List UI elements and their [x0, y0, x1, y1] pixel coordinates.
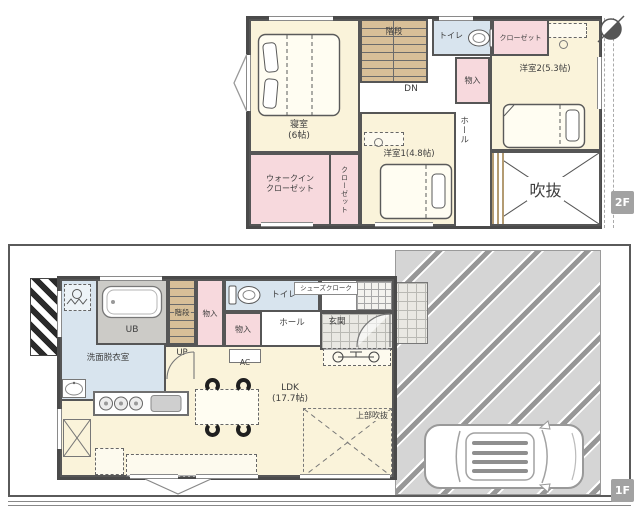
ldk-name: LDK — [281, 383, 299, 393]
yoshitsu2-label: 洋室2(5.3帖) — [495, 64, 595, 75]
road-edge-lines — [8, 501, 631, 506]
stool-icon — [559, 40, 568, 49]
window — [269, 16, 333, 21]
bay-window-triangle — [145, 478, 211, 496]
dn-label: DN — [396, 84, 426, 95]
washroom-label: 洗面脱衣室 — [60, 353, 156, 364]
floor1-badge-text: 1F — [615, 484, 630, 497]
kitchen-glyphs — [95, 393, 187, 414]
kitchen-counter — [93, 391, 189, 416]
bedroom-label: 寝室 (6帖) — [263, 120, 335, 143]
closet-top-label: クローゼット — [500, 33, 542, 43]
washing-machine-icon — [64, 284, 91, 311]
shoes-label: シューズクローク — [300, 284, 352, 292]
entrance-door-arc — [356, 313, 392, 349]
double-bed-icon — [257, 33, 341, 117]
wic-line2: クローゼット — [266, 184, 314, 193]
desk-icon — [364, 132, 404, 146]
window — [100, 276, 162, 281]
dining-table — [195, 389, 259, 425]
upper-void-label: 上部吹抜 — [355, 411, 389, 421]
chair-icon — [205, 422, 220, 437]
window — [597, 57, 602, 109]
floor2-badge-text: 2F — [615, 196, 630, 209]
window — [300, 474, 390, 479]
window — [439, 16, 473, 21]
room-storage-a-1f: 物入 — [196, 279, 224, 347]
wic-label: ウォークイン クローゼット — [251, 174, 329, 194]
stairs-1f-label: 階段 — [174, 307, 191, 318]
bay-window-chevron — [233, 54, 247, 112]
window — [375, 222, 433, 227]
pantry-shelf — [63, 419, 91, 457]
toilet-icon — [228, 282, 264, 309]
pantry-diagonal — [64, 420, 90, 456]
floor1-house: LDK (17.7帖) 洗面脱衣室 — [57, 276, 397, 480]
room-closet-top-2f: クローゼット — [492, 19, 549, 56]
floor2-plan: 寝室 (6帖) ウォークイン クローゼット クローゼット 階段 DN 洋室2(5… — [246, 16, 602, 229]
washbasin-icon — [62, 379, 86, 398]
ac-box: AC — [229, 349, 261, 363]
room-closet-side-2f: クローゼット — [329, 153, 360, 226]
room-storage-2f: 物入 — [455, 57, 490, 104]
compass-icon — [596, 14, 626, 44]
chair-icon — [236, 378, 251, 393]
void-edge-stripes — [492, 153, 504, 224]
closet-side-label: クローゼット — [340, 166, 350, 214]
void-2f-label: 吹抜 — [527, 177, 563, 201]
bathtub-icon — [101, 285, 163, 319]
bedroom-size: (6帖) — [288, 131, 310, 141]
floorplan-canvas: 寝室 (6帖) ウォークイン クローゼット クローゼット 階段 DN 洋室2(5… — [0, 0, 640, 514]
upper-void: 上部吹抜 — [303, 408, 392, 477]
hatched-strip — [30, 278, 60, 356]
wic-line1: ウォークイン — [266, 174, 314, 183]
washroom-door-arc — [166, 351, 196, 381]
stool-icon — [374, 138, 383, 147]
window — [261, 222, 313, 227]
stairs-1f: 階段 — [168, 279, 196, 345]
chair-icon — [236, 422, 251, 437]
ldk-size: (17.7帖) — [272, 394, 308, 404]
floor1-lot: LDK (17.7帖) 洗面脱衣室 — [8, 244, 631, 497]
bedroom-name: 寝室 — [290, 120, 308, 130]
car-icon — [422, 420, 587, 493]
ldk-label: LDK (17.7帖) — [255, 383, 325, 406]
room-void-2f: 吹抜 — [490, 151, 601, 226]
desk-icon — [543, 23, 587, 38]
room-storage-b-1f: 物入 — [224, 312, 262, 347]
yoshitsu1-label: 洋室1(4.8帖) — [359, 149, 459, 160]
bicycle-parking — [323, 348, 391, 366]
hall-2f-label: ホール — [458, 116, 469, 145]
chair-icon — [205, 378, 220, 393]
shoes-labelbox: シューズクローク — [294, 282, 358, 295]
toilet-2f-label: トイレ — [433, 31, 469, 41]
shoe-shelves — [356, 281, 392, 310]
stairs-2f-label: 階段 — [370, 27, 418, 38]
single-bed-icon — [502, 103, 586, 149]
storage-2f-label: 物入 — [465, 75, 481, 86]
ac-label: AC — [240, 358, 250, 367]
bicycle-icon — [324, 349, 390, 365]
floor2-badge: 2F — [611, 191, 634, 214]
storage-a-label: 物入 — [203, 308, 218, 319]
window — [57, 291, 62, 337]
floor1-badge: 1F — [611, 479, 634, 502]
storage-b-label: 物入 — [235, 324, 251, 335]
window — [57, 409, 62, 449]
washing-machine-glyph — [65, 285, 90, 310]
cabinet — [95, 448, 124, 475]
ub-label: UB — [96, 325, 168, 336]
single-bed-icon — [379, 163, 453, 220]
hall-1f-label: ホール — [262, 318, 322, 329]
